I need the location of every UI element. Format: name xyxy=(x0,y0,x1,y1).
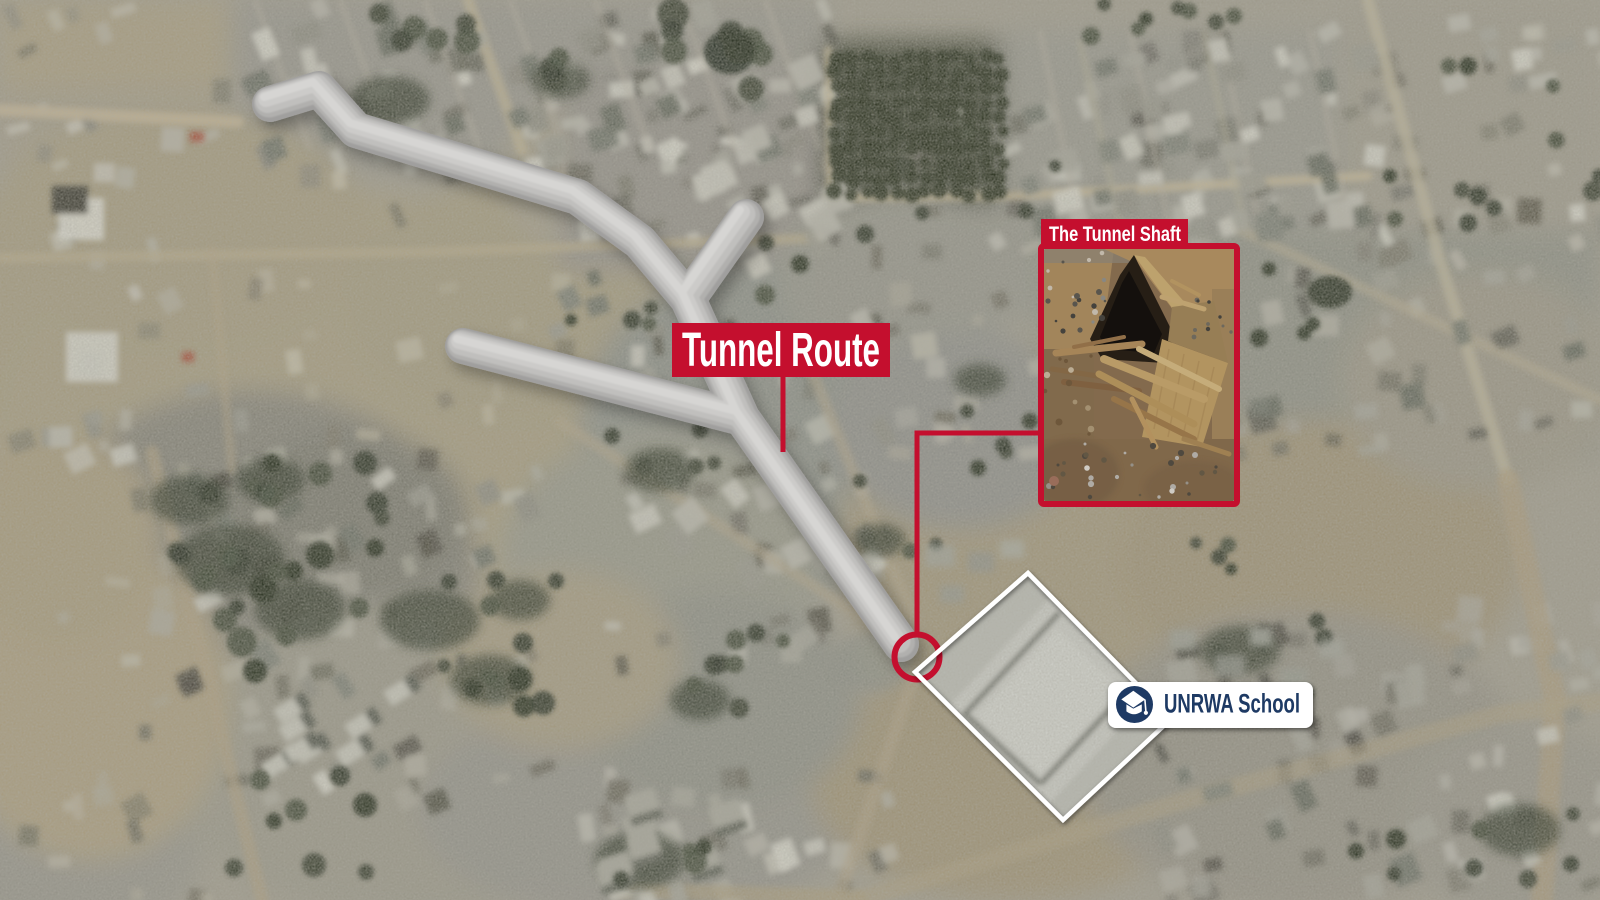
svg-text:The Tunnel Shaft: The Tunnel Shaft xyxy=(1049,222,1181,246)
svg-text:Tunnel Route: Tunnel Route xyxy=(682,324,880,377)
svg-text:UNRWA School: UNRWA School xyxy=(1164,689,1300,719)
